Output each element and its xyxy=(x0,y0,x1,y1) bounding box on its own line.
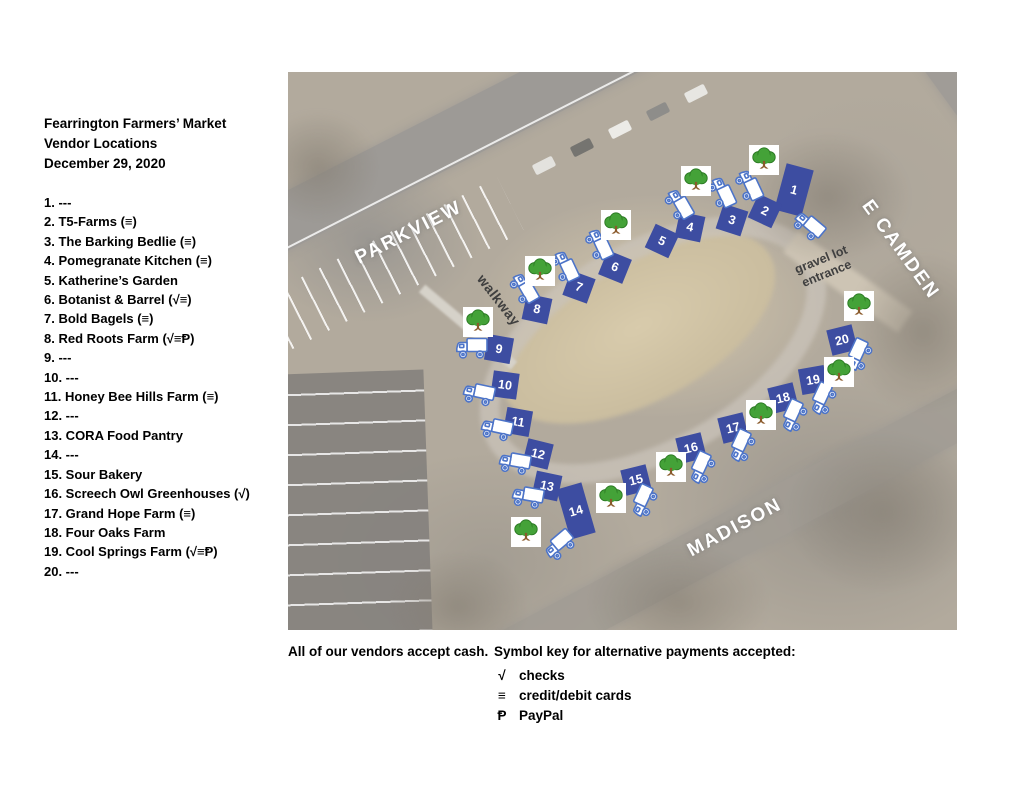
title-subtitle: Vendor Locations xyxy=(44,134,288,154)
vendor-list: 1. ---2. T5-Farms (≡)3. The Barking Bedl… xyxy=(44,193,288,581)
stall-number: 6 xyxy=(609,260,620,274)
vendor-item: 18. Four Oaks Farm xyxy=(44,523,288,542)
legend-panel: Fearrington Farmers’ Market Vendor Locat… xyxy=(44,114,288,581)
vendor-item: 6. Botanist & Barrel (√≡) xyxy=(44,290,288,309)
tree-marker-icon xyxy=(463,307,493,337)
truck-icon xyxy=(496,448,534,478)
vendor-item: 1. --- xyxy=(44,193,288,212)
tree-marker-icon xyxy=(511,517,541,547)
vendor-truck-icon xyxy=(509,482,547,512)
tree-icon xyxy=(597,484,625,512)
vendor-truck-icon xyxy=(455,336,489,360)
stall-number: 5 xyxy=(656,234,668,248)
vendor-item: 2. T5-Farms (≡) xyxy=(44,212,288,231)
truck-icon xyxy=(509,482,547,512)
tree-icon xyxy=(657,453,685,481)
stall-number: 10 xyxy=(497,378,513,392)
map-title: Fearrington Farmers’ Market Vendor Locat… xyxy=(44,114,288,174)
vendor-item: 14. --- xyxy=(44,445,288,464)
vendor-item: 20. --- xyxy=(44,562,288,581)
tree-icon xyxy=(464,308,492,336)
key-rows: √checks≡credit/debit cardsⱣPayPal xyxy=(494,665,632,725)
payment-key: All of our vendors accept cash. Symbol k… xyxy=(288,644,1008,659)
vendor-item: 15. Sour Bakery xyxy=(44,465,288,484)
map-overlay: 1234567891011121314151617181920 xyxy=(288,72,957,630)
vendor-item: 7. Bold Bagels (≡) xyxy=(44,309,288,328)
stall-number: 4 xyxy=(685,220,694,234)
tree-icon xyxy=(825,358,853,386)
vendor-item: 8. Red Roots Farm (√≡Ᵽ) xyxy=(44,329,288,348)
stall-number: 9 xyxy=(494,342,503,356)
vendor-item: 5. Katherine’s Garden xyxy=(44,271,288,290)
page: Fearrington Farmers’ Market Vendor Locat… xyxy=(0,0,1024,793)
tree-icon xyxy=(747,401,775,429)
payment-label: checks xyxy=(519,668,565,683)
tree-marker-icon xyxy=(596,483,626,513)
vendor-item: 13. CORA Food Pantry xyxy=(44,426,288,445)
stall-number: 2 xyxy=(759,204,771,218)
street-label-e-camden: E CAMDEN xyxy=(857,196,944,304)
street-label-parkview: PARKVIEW xyxy=(352,197,466,270)
map-note: gravel lot entrance xyxy=(793,243,856,292)
tree-icon xyxy=(602,211,630,239)
tree-icon xyxy=(526,257,554,285)
vendor-item: 9. --- xyxy=(44,348,288,367)
tree-marker-icon xyxy=(749,145,779,175)
tree-icon xyxy=(512,518,540,546)
key-row: ⱣPayPal xyxy=(494,705,632,725)
payment-label: credit/debit cards xyxy=(519,688,632,703)
payment-symbol: Ᵽ xyxy=(494,708,510,723)
vendor-item: 16. Screech Owl Greenhouses (√) xyxy=(44,484,288,503)
vendor-item: 3. The Barking Bedlie (≡) xyxy=(44,232,288,251)
tree-marker-icon xyxy=(844,291,874,321)
payment-label: PayPal xyxy=(519,708,563,723)
title-market-name: Fearrington Farmers’ Market xyxy=(44,114,288,134)
tree-marker-icon xyxy=(746,400,776,430)
tree-marker-icon xyxy=(656,452,686,482)
aerial-map: 1234567891011121314151617181920 xyxy=(288,72,957,630)
vendor-item: 12. --- xyxy=(44,406,288,425)
street-label-madison: MADISON xyxy=(684,494,786,562)
payment-symbol: ≡ xyxy=(494,688,510,703)
tree-icon xyxy=(845,292,873,320)
truck-icon xyxy=(455,336,489,360)
vendor-item: 10. --- xyxy=(44,368,288,387)
stall-number: 3 xyxy=(727,213,737,227)
key-title: Symbol key for alternative payments acce… xyxy=(494,644,796,659)
payment-symbol: √ xyxy=(494,668,510,683)
vendor-item: 11. Honey Bee Hills Farm (≡) xyxy=(44,387,288,406)
tree-marker-icon xyxy=(824,357,854,387)
tree-marker-icon xyxy=(601,210,631,240)
tree-marker-icon xyxy=(681,166,711,196)
vendor-truck-icon xyxy=(496,448,534,478)
stall-number: 20 xyxy=(834,332,851,347)
tree-icon xyxy=(750,146,778,174)
stall-5: 5 xyxy=(645,224,680,259)
vendor-item: 17. Grand Hope Farm (≡) xyxy=(44,504,288,523)
key-row: ≡credit/debit cards xyxy=(494,685,632,705)
title-date: December 29, 2020 xyxy=(44,154,288,174)
tree-marker-icon xyxy=(525,256,555,286)
key-row: √checks xyxy=(494,665,632,685)
vendor-item: 19. Cool Springs Farm (√≡Ᵽ) xyxy=(44,542,288,561)
stall-number: 8 xyxy=(532,302,541,316)
stall-number: 7 xyxy=(574,280,585,294)
vendor-item: 4. Pomegranate Kitchen (≡) xyxy=(44,251,288,270)
stall-number: 14 xyxy=(568,503,585,519)
stall-number: 1 xyxy=(789,183,799,197)
tree-icon xyxy=(682,167,710,195)
